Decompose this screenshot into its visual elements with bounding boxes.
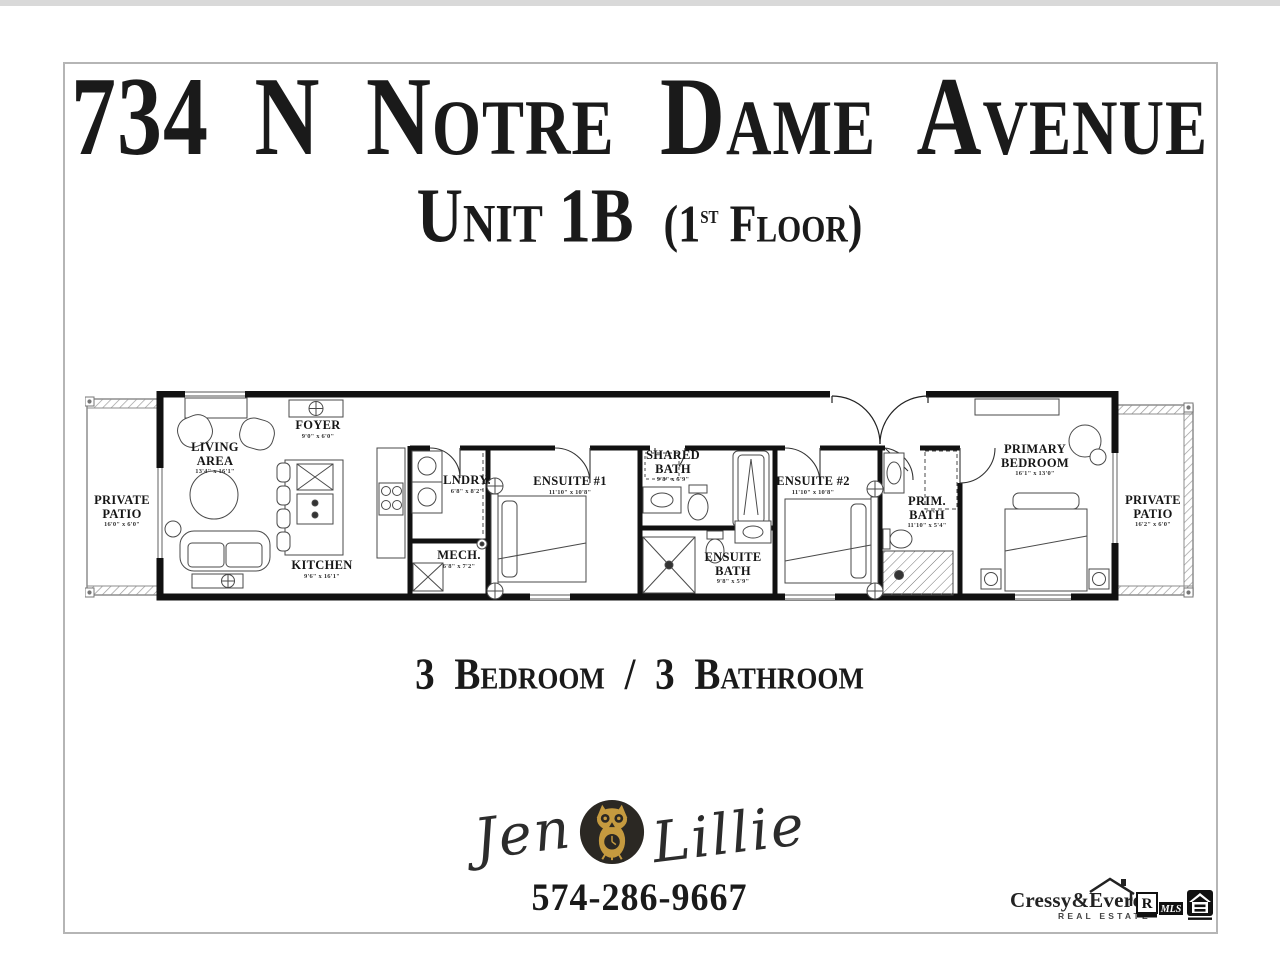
address-title: 734 N Notre Dame Avenue — [63, 64, 1216, 171]
agent-first-name: Jen — [471, 796, 576, 872]
room-label-private-patio-left: PRIVATE PATIO16'0" x 6'0" — [82, 494, 162, 528]
bed-bath-summary: 3 Bedroom / 3 Bathroom — [63, 648, 1216, 700]
top-border-strip — [0, 0, 1280, 6]
room-label-shared-bath: SHARED BATH9'8" x 5'9" — [633, 449, 713, 483]
room-label-ensuite-bath: ENSUITE BATH9'8" x 5'9" — [688, 551, 778, 585]
room-label-foyer: FOYER9'0" x 6'0" — [273, 419, 363, 440]
realtor-mls-icon: R MLS — [1136, 892, 1184, 920]
floor-plan-drawing — [85, 391, 1195, 605]
equal-housing-icon — [1186, 889, 1214, 921]
agent-last-name: Lillie — [648, 792, 809, 875]
ensuite1-furniture — [487, 478, 586, 599]
svg-text:MLS: MLS — [1160, 904, 1182, 915]
room-label-primary-bedroom: PRIMARY BEDROOM16'1" x 13'0" — [973, 443, 1097, 477]
room-label-kitchen: KITCHEN9'6" x 16'1" — [272, 559, 372, 580]
room-label-mech: MECH.6'8" x 7'2" — [419, 549, 499, 570]
unit-subtitle: Unit 1B (1st Floor) — [63, 178, 1216, 255]
ensuite2-furniture — [785, 481, 883, 599]
owl-icon — [578, 798, 646, 871]
room-label-ensuite-2: ENSUITE #211'10" x 10'8" — [758, 475, 868, 496]
unit-label: Unit 1B — [417, 178, 634, 255]
floor-label: (1st Floor) — [664, 198, 863, 251]
kitchen-furniture — [277, 448, 405, 558]
svg-text:R: R — [1142, 896, 1153, 912]
floor-suffix: Floor) — [719, 195, 863, 254]
brokerage-name: Cressy&Everett — [1010, 888, 1157, 913]
floor-plan: PRIVATE PATIO16'0" x 6'0" LIVING AREA13'… — [85, 391, 1195, 605]
floor-ordinal: st — [700, 200, 718, 229]
foyer-fixture — [289, 400, 343, 417]
room-label-ensuite-1: ENSUITE #111'10" x 10'8" — [515, 475, 625, 496]
room-label-living-area: LIVING AREA13'4" x 16'1" — [178, 441, 252, 475]
floor-prefix: (1 — [664, 195, 701, 254]
flyer-page: { "header": { "address": "734 N Notre Da… — [0, 0, 1280, 960]
room-label-laundry: LNDRY.6'8" x 8'2" — [432, 474, 502, 495]
agent-logo: Jen Lillie — [455, 790, 825, 878]
room-label-private-patio-right: PRIVATE PATIO16'2" x 6'0" — [1113, 494, 1193, 528]
room-label-prim-bath: PRIM. BATH11'10" x 5'4" — [897, 495, 957, 529]
